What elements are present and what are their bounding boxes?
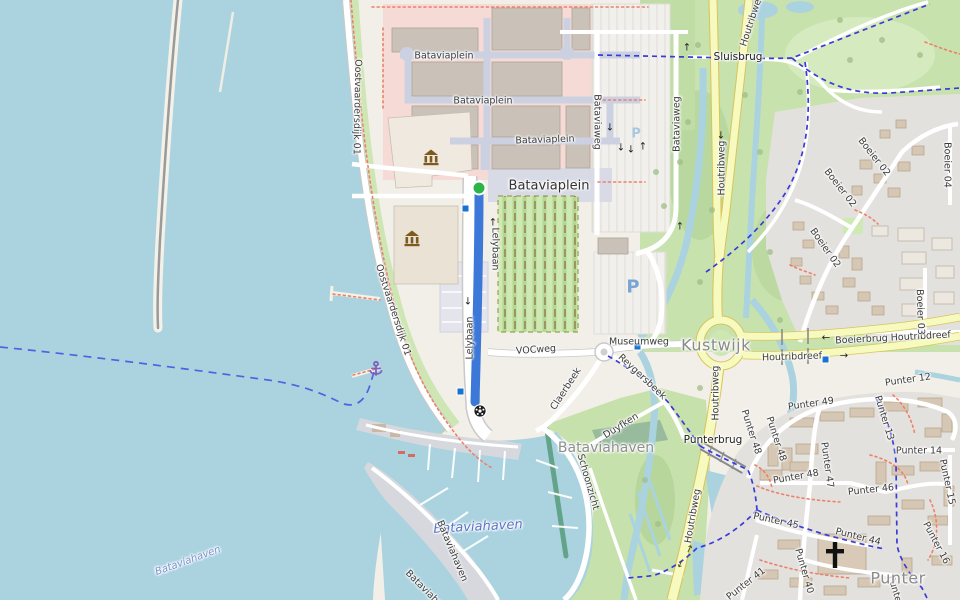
map-base-layer [0,0,960,600]
route-line[interactable] [475,192,479,402]
bus-stop-icon [822,356,829,363]
helm-icon [474,405,486,417]
map-canvas[interactable]: Bataviaplein Bataviaplein Bataviaplein B… [0,0,960,600]
bus-stop-icon [457,388,464,395]
route-start-marker[interactable] [473,182,486,195]
bus-stop-icon [634,343,641,350]
bus-stop-icon [462,205,469,212]
